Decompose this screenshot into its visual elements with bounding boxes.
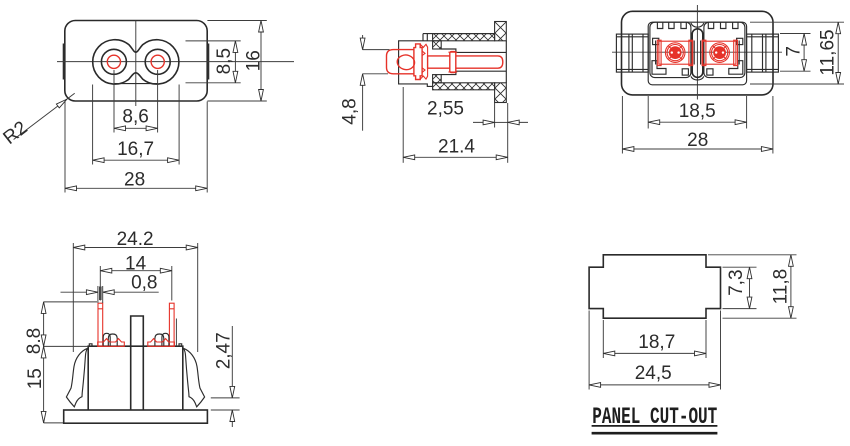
svg-text:24,5: 24,5 xyxy=(635,363,672,384)
svg-text:18,5: 18,5 xyxy=(679,101,716,122)
svg-text:8,5: 8,5 xyxy=(214,48,235,74)
svg-text:14: 14 xyxy=(125,254,147,275)
svg-text:0,8: 0,8 xyxy=(131,273,157,294)
svg-text:2,47: 2,47 xyxy=(213,332,234,369)
svg-text:28: 28 xyxy=(124,170,145,191)
svg-text:8,6: 8,6 xyxy=(122,107,148,128)
svg-text:8.8: 8.8 xyxy=(24,328,45,354)
svg-text:15: 15 xyxy=(25,368,46,389)
svg-text:16,7: 16,7 xyxy=(117,139,154,160)
svg-text:11,65: 11,65 xyxy=(818,29,839,75)
svg-text:21.4: 21.4 xyxy=(438,136,475,157)
svg-text:11,8: 11,8 xyxy=(770,269,791,305)
svg-text:16: 16 xyxy=(243,50,264,71)
svg-text:7,3: 7,3 xyxy=(726,269,747,295)
svg-text:7: 7 xyxy=(783,46,804,57)
svg-text:2,55: 2,55 xyxy=(427,99,464,120)
svg-text:4,8: 4,8 xyxy=(340,98,361,124)
svg-text:24.2: 24.2 xyxy=(117,229,154,250)
svg-text:18,7: 18,7 xyxy=(638,332,675,353)
svg-text:28: 28 xyxy=(687,130,708,151)
